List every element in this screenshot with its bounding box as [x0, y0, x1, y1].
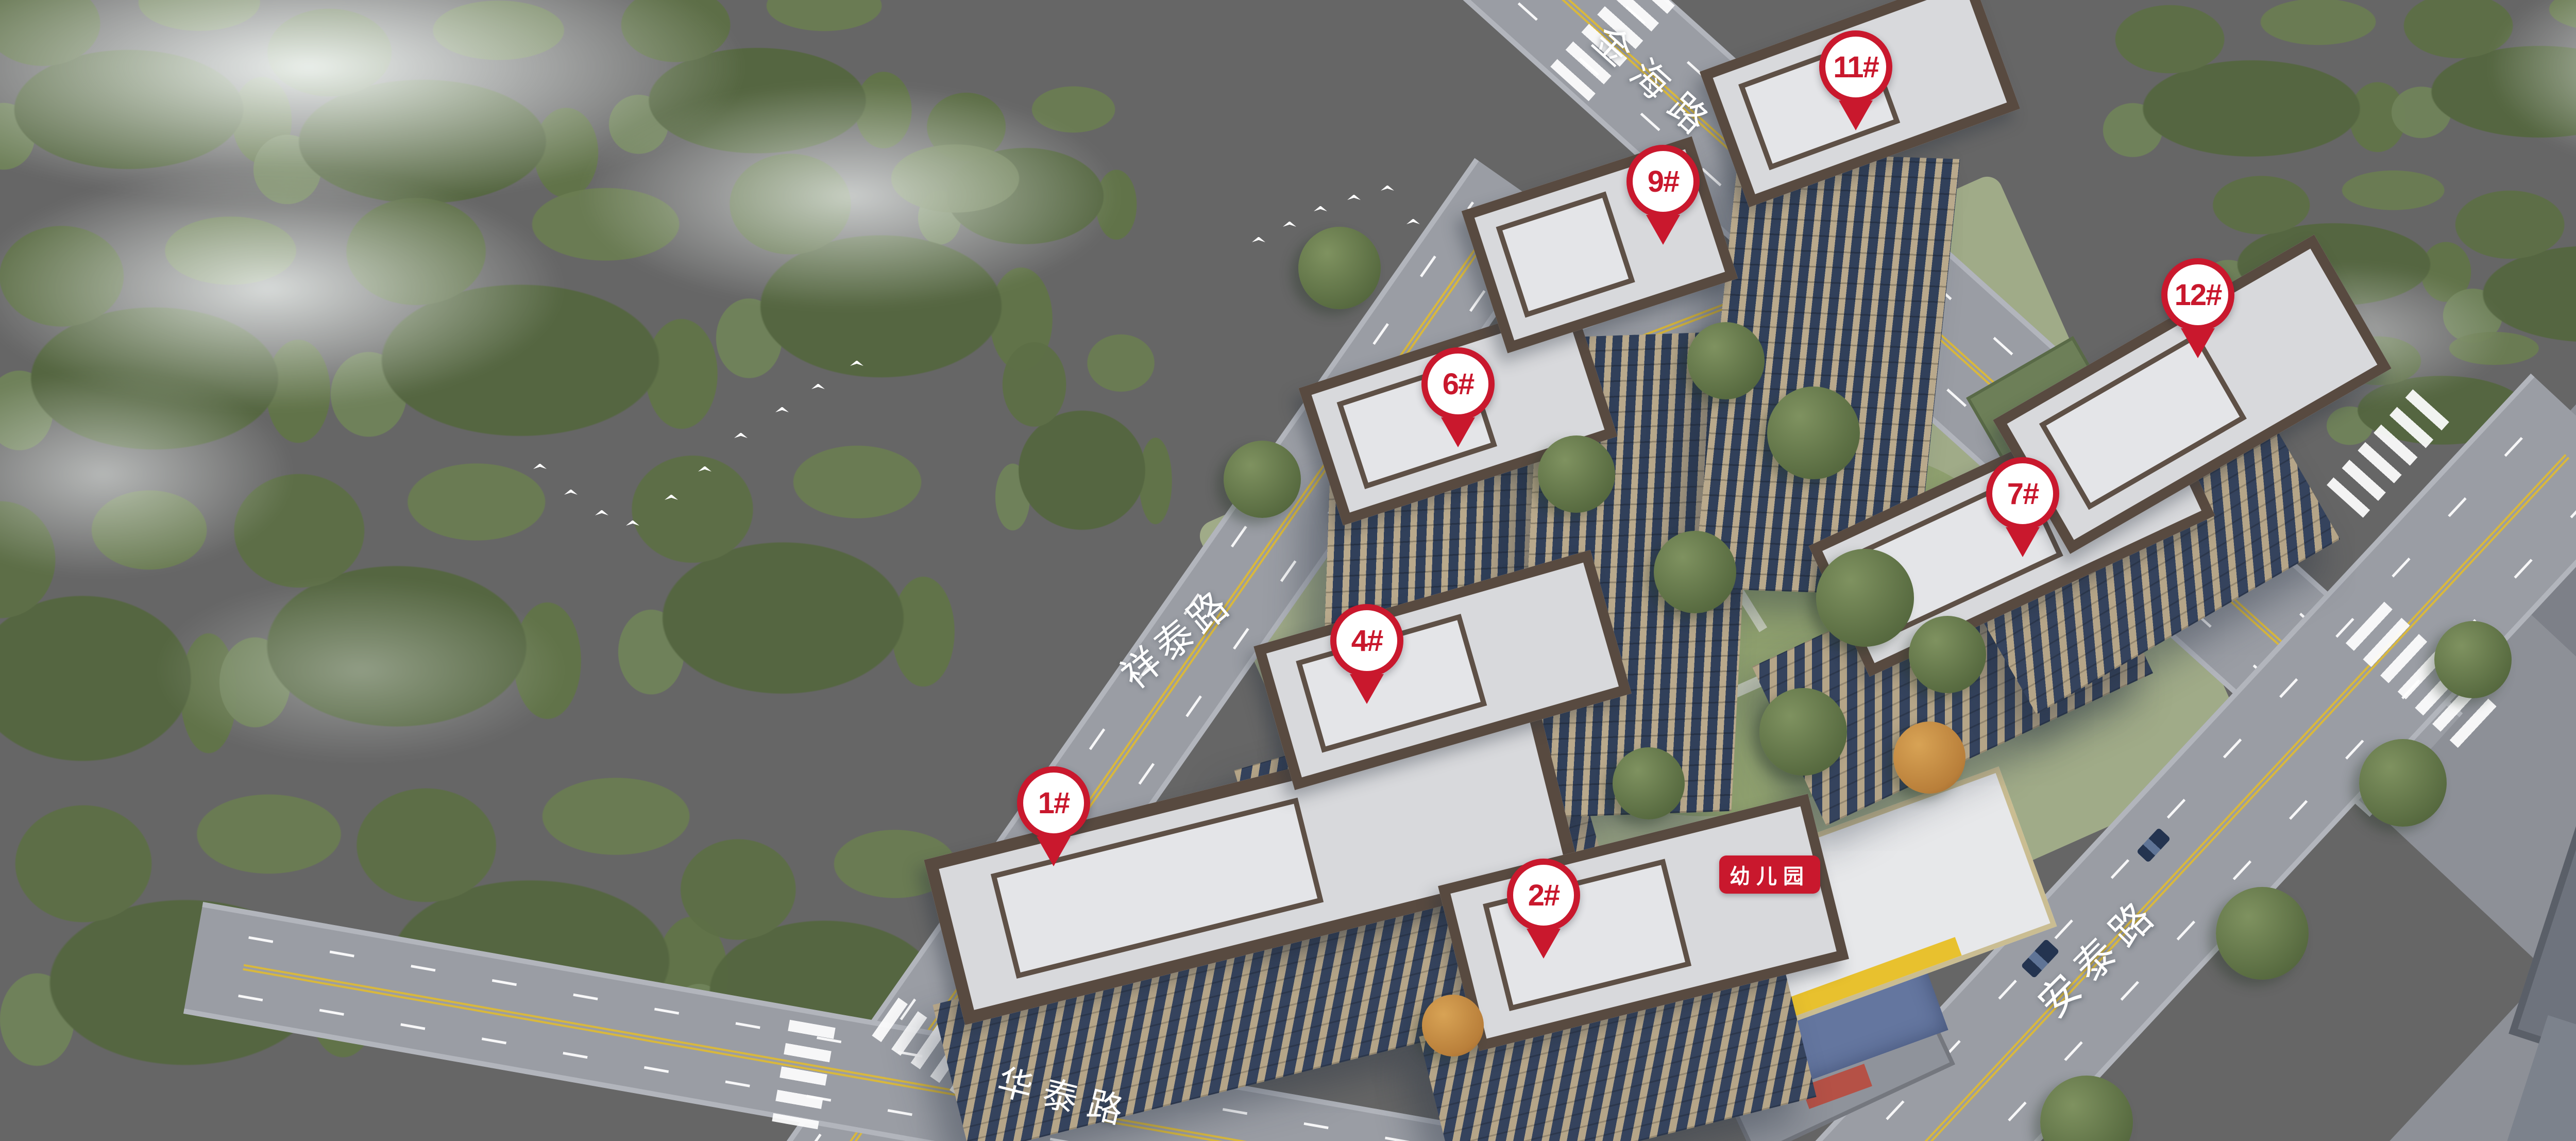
- aerial-rendering: 金海路 祥泰路 华泰路 安泰路 幼儿园 1# 2# 4# 6# 7# 9# 11…: [0, 0, 2576, 1141]
- tree: [1759, 688, 1847, 776]
- fog-patch: [155, 577, 567, 763]
- street-tree: [1298, 227, 1381, 309]
- badge-label: 1#: [1038, 786, 1070, 820]
- kindergarten-label: 幼儿园: [1719, 855, 1820, 894]
- bird-icon: [1406, 219, 1420, 224]
- bird-icon: [1381, 186, 1394, 191]
- badge-building-1: 1#: [1017, 766, 1090, 840]
- bird-icon: [1283, 222, 1296, 227]
- tree: [1687, 322, 1765, 399]
- badge-label: 7#: [2007, 477, 2039, 511]
- badge-building-4: 4#: [1330, 604, 1403, 677]
- badge-label: 12#: [2175, 278, 2222, 312]
- tree: [1816, 549, 1914, 647]
- badge-label: 4#: [1351, 624, 1383, 658]
- badge-label: 11#: [1833, 50, 1878, 85]
- bird-icon: [1314, 206, 1327, 211]
- badge-building-7: 7#: [1986, 457, 2059, 530]
- badge-building-6: 6#: [1421, 347, 1495, 421]
- autumn-tree: [1893, 721, 1965, 794]
- forest-grove: [974, 304, 1190, 572]
- fog-patch: [580, 82, 1121, 309]
- street-tree: [2359, 739, 2447, 827]
- badge-building-9: 9#: [1626, 145, 1700, 218]
- tree: [1654, 531, 1736, 613]
- badge-label: 6#: [1443, 367, 1474, 401]
- street-tree: [2434, 621, 2512, 698]
- tree: [1909, 616, 1986, 693]
- tree: [1613, 747, 1685, 819]
- badge-label: 9#: [1648, 164, 1679, 199]
- badge-building-12: 12#: [2161, 258, 2234, 331]
- autumn-tree: [1422, 995, 1484, 1056]
- street-tree: [2216, 887, 2309, 980]
- forest-grove: [577, 407, 989, 747]
- badge-label: 2#: [1528, 878, 1560, 913]
- roof-panel: [1496, 191, 1635, 317]
- bird-icon: [1252, 237, 1265, 242]
- badge-building-11: 11#: [1819, 30, 1892, 104]
- tree: [1767, 387, 1860, 479]
- badge-building-2: 2#: [1507, 859, 1580, 932]
- street-tree: [1224, 441, 1301, 518]
- bird-icon: [1347, 195, 1361, 200]
- tree: [1538, 435, 1615, 513]
